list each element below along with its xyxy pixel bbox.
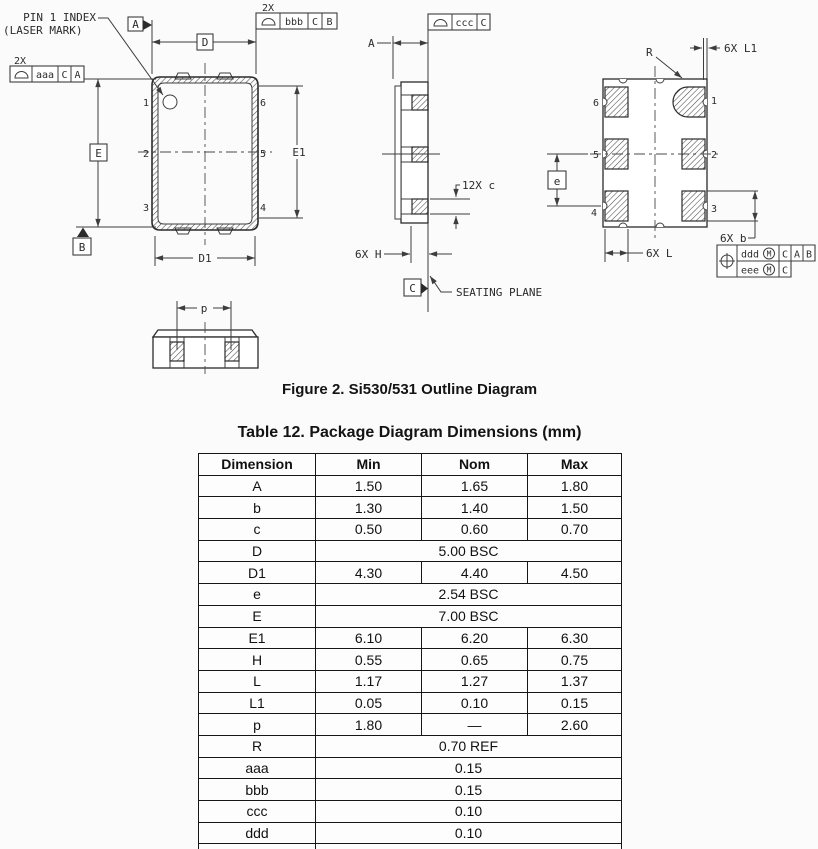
dim-l1-label: 6X L1 [724,42,757,55]
fcf-bbb-qty: 2X [262,3,274,14]
table-row: b1.301.401.50 [199,497,622,519]
cell-dimension: E1 [199,627,316,649]
table-row: L1.171.271.37 [199,670,622,692]
fcf-position-d1a: C [782,250,788,261]
fcf-aaa: 2X aaa C A [10,56,156,82]
fcf-ccc-tol: ccc [455,18,473,29]
dim-e-label: E [95,147,102,160]
dim-d: D [152,20,256,74]
table-row: H0.550.650.75 [199,649,622,671]
dim-a: A [368,30,428,82]
datum-a: A [128,17,152,31]
pin-label-1: 1 [711,96,717,107]
cell-nom: 0.10 [422,692,528,714]
cell-dimension: L [199,670,316,692]
fcf-position-tol1: ddd [741,250,759,261]
table-row: E7.00 BSC [199,605,622,627]
cell-max: 1.50 [528,497,622,519]
cell-max: 2.60 [528,714,622,736]
fcf-bbb-datum2: B [326,17,332,28]
cell-dimension: D1 [199,562,316,584]
table-row: R0.70 REF [199,735,622,757]
table-row: D14.304.404.50 [199,562,622,584]
fcf-bbb-tol: bbb [285,17,303,28]
top-view: PIN 1 INDEX (LASER MARK) D A 2X aaa C [3,3,337,266]
pin-label-6: 6 [593,98,599,109]
fcf-position: ddd M C A B eee M C [717,245,815,277]
cell-max: 0.70 [528,519,622,541]
cell-span-value: 0.10 [316,801,622,823]
dim-d-label: D [202,36,209,49]
cell-min: 0.55 [316,649,422,671]
pin1-index-label-2: (LASER MARK) [3,24,82,37]
figure-caption: Figure 2. Si530/531 Outline Diagram [198,381,621,398]
cell-span-value: 5.00 BSC [316,540,622,562]
fcf-bbb: 2X bbb C B [256,3,337,29]
cell-min: 1.17 [316,670,422,692]
dim-l: 6X L [605,229,673,262]
table-row: eee0.05 [199,844,622,849]
pin-label-3: 3 [143,203,149,214]
pin-label-2: 2 [711,150,717,161]
cell-dimension: b [199,497,316,519]
cell-nom: 0.65 [422,649,528,671]
fcf-ccc: ccc C [428,14,490,30]
cell-min: 4.30 [316,562,422,584]
table-row: ddd0.10 [199,822,622,844]
cell-min: 0.50 [316,519,422,541]
cell-span-value: 0.15 [316,757,622,779]
cell-nom: 4.40 [422,562,528,584]
table-row: L10.050.100.15 [199,692,622,714]
cell-span-value: 0.10 [316,822,622,844]
fcf-position-tol2: eee [741,266,759,277]
seating-plane: C SEATING PLANE [404,223,542,312]
cell-dimension: ddd [199,822,316,844]
datum-a-label: A [132,18,139,31]
cell-dimension: e [199,584,316,606]
dim-r-label: R [646,46,653,59]
cell-dimension: R [199,735,316,757]
cell-nom: 1.65 [422,475,528,497]
pin1-rounded-pad [673,87,705,117]
dim-e1-label: E1 [292,146,305,159]
dim-e-pitch-label: e [554,175,561,188]
fcf-position-mod2: M [767,266,772,275]
table-title: Table 12. Package Diagram Dimensions (mm… [148,424,671,442]
cell-dimension: E [199,605,316,627]
table-header-row: Dimension Min Nom Max [199,454,622,476]
cell-span-value: 0.70 REF [316,735,622,757]
dim-c-label: 12X c [462,179,495,192]
cell-dimension: D [199,540,316,562]
dimensions-table-body: A1.501.651.80b1.301.401.50c0.500.600.70D… [199,475,622,849]
cell-max: 4.50 [528,562,622,584]
col-header-max: Max [528,454,622,476]
seating-plane-label: SEATING PLANE [456,286,542,299]
col-header-dimension: Dimension [199,454,316,476]
fcf-position-mod1: M [767,250,772,259]
cell-min: 1.80 [316,714,422,736]
cell-max: 0.75 [528,649,622,671]
fcf-aaa-datum2: A [74,70,80,81]
cell-span-value: 0.15 [316,779,622,801]
fcf-ccc-datum1: C [480,18,486,29]
fcf-bbb-datum1: C [312,17,318,28]
cell-nom: 0.60 [422,519,528,541]
table-row: D5.00 BSC [199,540,622,562]
pin1-index-mark [163,95,177,109]
cell-max: 1.37 [528,670,622,692]
dim-c: 12X c [430,179,495,229]
bottom-view: R 6X L1 e 6X L [547,38,815,277]
datum-b-label: B [79,241,86,254]
dim-a-label: A [368,37,375,50]
cell-nom: — [422,714,528,736]
dim-b-label: 6X b [720,232,747,245]
cell-min: 1.30 [316,497,422,519]
datum-c-label: C [409,282,416,295]
table-row: E16.106.206.30 [199,627,622,649]
cell-nom: 6.20 [422,627,528,649]
dim-h: 6X H [355,226,452,263]
dim-e-pitch: e [547,154,601,206]
cell-dimension: c [199,519,316,541]
table-row: e2.54 BSC [199,584,622,606]
cell-dimension: A [199,475,316,497]
pin-label-1: 1 [143,98,149,109]
col-header-min: Min [316,454,422,476]
cell-dimension: H [199,649,316,671]
dim-l-label: 6X L [646,247,673,260]
cell-max: 6.30 [528,627,622,649]
cell-dimension: ccc [199,801,316,823]
datasheet-page: PIN 1 INDEX (LASER MARK) D A 2X aaa C [0,0,818,849]
table-row: c0.500.600.70 [199,519,622,541]
dimensions-table: Dimension Min Nom Max A1.501.651.80b1.30… [198,453,622,849]
detail-view: p [153,301,258,374]
table-row: p1.80—2.60 [199,714,622,736]
table-row: ccc0.10 [199,801,622,823]
cell-dimension: bbb [199,779,316,801]
pin1-index-label-1: PIN 1 INDEX [23,11,96,24]
pin-label-3: 3 [711,204,717,215]
dim-p-label: p [201,302,208,315]
cell-dimension: L1 [199,692,316,714]
pin-label-4: 4 [260,203,266,214]
col-header-nom: Nom [422,454,528,476]
cell-span-value: 2.54 BSC [316,584,622,606]
fcf-aaa-datum1: C [61,70,67,81]
pin-label-4: 4 [591,208,597,219]
pin-label-2: 2 [143,149,149,160]
fcf-position-d2a: C [782,266,788,277]
cell-max: 0.15 [528,692,622,714]
fcf-aaa-qty: 2X [14,56,26,67]
fcf-position-d1c: B [806,250,812,261]
dim-h-label: 6X H [355,248,382,261]
cell-dimension: p [199,714,316,736]
cell-min: 0.05 [316,692,422,714]
cell-dimension: aaa [199,757,316,779]
cell-span-value: 0.05 [316,844,622,849]
fcf-position-d1b: A [794,250,800,261]
dim-r: R [646,46,682,78]
cell-min: 1.50 [316,475,422,497]
cell-nom: 1.27 [422,670,528,692]
cell-min: 6.10 [316,627,422,649]
cell-nom: 1.40 [422,497,528,519]
pin-label-6: 6 [260,98,266,109]
cell-span-value: 7.00 BSC [316,605,622,627]
table-row: bbb0.15 [199,779,622,801]
dim-e1: E1 [259,86,311,218]
cell-dimension: eee [199,844,316,849]
side-view: A ccc C 12X c 6X H [355,14,542,312]
outline-diagram: PIN 1 INDEX (LASER MARK) D A 2X aaa C [0,0,818,378]
table-row: aaa0.15 [199,757,622,779]
pin-label-5: 5 [260,149,266,160]
cell-max: 1.80 [528,475,622,497]
dim-l1: 6X L1 [690,38,757,80]
table-row: A1.501.651.80 [199,475,622,497]
datum-b: B [73,228,91,256]
dim-d1-label: D1 [198,252,211,265]
fcf-aaa-tol: aaa [36,70,54,81]
pin-label-5: 5 [593,150,599,161]
dim-b: 6X b [707,191,758,245]
